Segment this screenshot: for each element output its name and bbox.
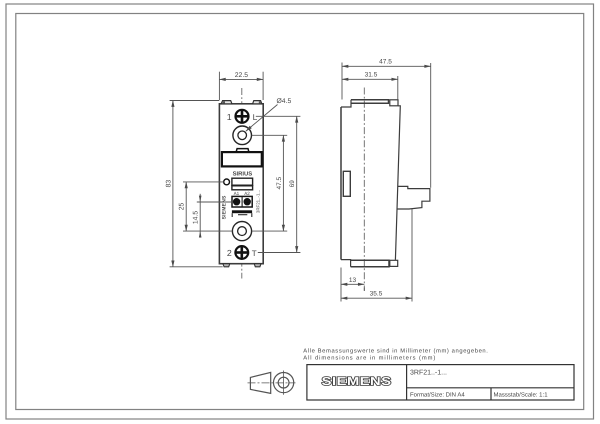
- svg-text:22.5: 22.5: [235, 72, 248, 79]
- svg-text:13: 13: [349, 277, 357, 284]
- svg-text:2: 2: [227, 248, 232, 258]
- svg-text:Ø4.5: Ø4.5: [277, 98, 292, 105]
- svg-text:L: L: [253, 112, 258, 122]
- svg-text:83: 83: [165, 180, 172, 188]
- svg-text:47.5: 47.5: [276, 176, 283, 189]
- svg-text:35.5: 35.5: [370, 291, 383, 298]
- svg-text:Format/Size: DIN A4: Format/Size: DIN A4: [410, 392, 465, 399]
- svg-text:All dimensions are in millimet: All dimensions are in millimeters (mm): [303, 354, 436, 361]
- svg-text:Alle Bemassungswerte sind in M: Alle Bemassungswerte sind in Millimeter …: [303, 347, 488, 354]
- svg-text:25: 25: [179, 203, 186, 211]
- svg-text:14.5: 14.5: [192, 211, 199, 224]
- svg-text:3RF21..-1...: 3RF21..-1...: [410, 370, 447, 377]
- svg-text:SIEMENS: SIEMENS: [221, 195, 227, 219]
- svg-text:SIRIUS: SIRIUS: [233, 170, 253, 177]
- svg-text:Massstab/Scale: 1:1: Massstab/Scale: 1:1: [494, 392, 549, 399]
- svg-text:47.5: 47.5: [379, 59, 392, 66]
- svg-text:69: 69: [289, 180, 296, 188]
- svg-text:3RF21..-1...: 3RF21..-1...: [256, 190, 261, 213]
- svg-text:T: T: [252, 249, 257, 258]
- svg-text:31.5: 31.5: [365, 72, 378, 79]
- svg-text:A2: A2: [244, 191, 250, 196]
- svg-text:A1: A1: [234, 191, 240, 196]
- svg-text:SIEMENS: SIEMENS: [322, 376, 392, 388]
- svg-text:1: 1: [227, 112, 232, 122]
